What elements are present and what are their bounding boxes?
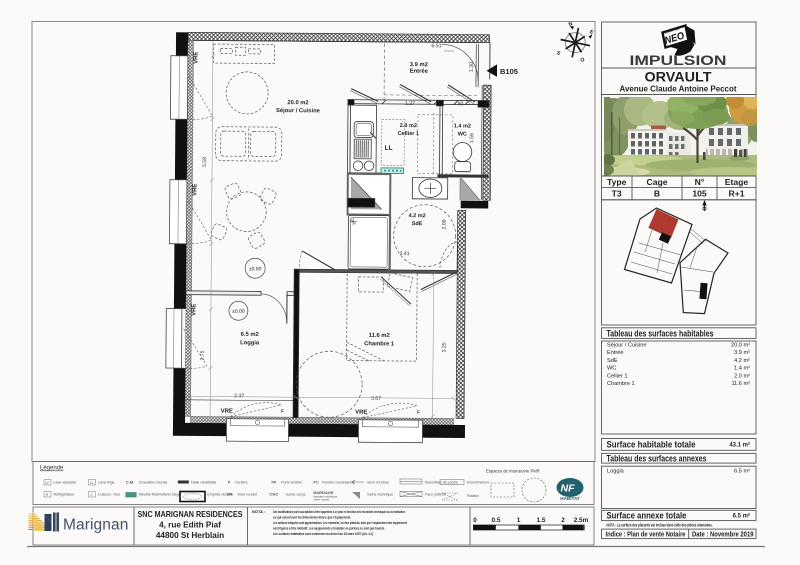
svg-text:VRE: VRE [191, 304, 197, 316]
svg-text:SNC MARIGNAN RESIDENCES: SNC MARIGNAN RESIDENCES [138, 510, 243, 519]
svg-text:N: N [568, 21, 574, 28]
svg-text:1.30: 1.30 [469, 62, 475, 72]
svg-text:SdE: SdE [412, 221, 423, 227]
svg-text:Marignan: Marignan [63, 517, 128, 534]
svg-text:11.6 m²: 11.6 m² [731, 381, 750, 387]
svg-text:Surface annexe totale: Surface annexe totale [607, 511, 687, 522]
svg-text:B105: B105 [500, 67, 518, 76]
svg-text:2.37: 2.37 [234, 393, 244, 399]
svg-text:6.5 m²: 6.5 m² [734, 469, 750, 475]
svg-text:Cellier 1: Cellier 1 [398, 131, 419, 137]
svg-text:PF: PF [271, 480, 277, 485]
svg-text:Entrée: Entrée [410, 69, 429, 75]
svg-text:1.27: 1.27 [405, 101, 415, 107]
svg-text:R+1: R+1 [728, 189, 744, 199]
svg-text:LL: LL [90, 481, 94, 485]
svg-text:VRE: VRE [193, 52, 199, 64]
svg-text:Garde-corps: Garde-corps [285, 493, 305, 497]
svg-text:2.0 m2: 2.0 m2 [400, 123, 417, 129]
svg-text:1: 1 [517, 517, 521, 524]
svg-text:F: F [281, 409, 284, 414]
svg-text:VRE: VRE [192, 184, 198, 196]
svg-text:Encombrement: Encombrement [467, 481, 489, 485]
svg-text:1.56: 1.56 [469, 133, 475, 143]
svg-text:44800 St Herblain: 44800 St Herblain [156, 531, 224, 540]
svg-text:3.57: 3.57 [371, 396, 381, 402]
svg-text:Loggia: Loggia [607, 469, 625, 475]
svg-text:Volet roulant: Volet roulant [237, 493, 257, 497]
svg-text:HABITAT: HABITAT [560, 496, 580, 501]
svg-text:Entrée: Entrée [607, 350, 623, 356]
svg-text:0.5: 0.5 [492, 517, 501, 524]
svg-text:Lave-vaisselle: Lave-vaisselle [54, 481, 77, 485]
svg-text:Les surfaces indiquées sont ap: Les surfaces indiquées sont approximativ… [273, 520, 407, 525]
svg-text:±0.00: ±0.00 [232, 309, 245, 315]
svg-text:2.09: 2.09 [442, 219, 448, 229]
svg-text:Type: Type [607, 177, 627, 187]
svg-text:S: S [555, 50, 561, 57]
svg-text:VRE: VRE [355, 410, 367, 416]
svg-text:2: 2 [561, 517, 565, 524]
svg-text:NF: NF [561, 483, 576, 495]
svg-text:Tableau des surfaces annexes: Tableau des surfaces annexes [607, 453, 707, 464]
svg-text:Légende: Légende [40, 466, 64, 472]
svg-text:Des modifications sont suscept: Des modifications sont susceptibles d'êt… [273, 509, 405, 514]
svg-text:2.0 m²: 2.0 m² [734, 373, 750, 379]
svg-text:Tableau des surfaces habitable: Tableau des surfaces habitables [607, 329, 714, 340]
svg-text:20.0 m2: 20.0 m2 [287, 100, 308, 106]
svg-text:20.0 m²: 20.0 m² [731, 343, 750, 349]
svg-text:Date : Novembre 2019: Date : Novembre 2019 [692, 529, 754, 538]
svg-text:Retombée de poutre: Retombée de poutre [425, 481, 458, 485]
svg-text:6.5 m2: 6.5 m2 [241, 332, 259, 338]
svg-text:2.5m: 2.5m [574, 517, 589, 524]
svg-text:105: 105 [692, 189, 707, 199]
svg-text:3.25: 3.25 [442, 342, 448, 352]
svg-text:43.1 m²: 43.1 m² [729, 442, 750, 449]
svg-text:CGC: CGC [269, 492, 278, 497]
svg-text:Les surfaces habitables sont c: Les surfaces habitables sont conformes a… [273, 531, 373, 536]
svg-text:C: C [91, 493, 94, 497]
svg-text:Indice : Plan de vente Notaire: Indice : Plan de vente Notaire [606, 529, 686, 538]
svg-text:Rotation: Rotation [467, 494, 479, 498]
svg-text:±0.00: ±0.00 [249, 266, 262, 272]
svg-text:2.41: 2.41 [400, 251, 410, 257]
svg-text:6.5 m²: 6.5 m² [733, 513, 750, 520]
svg-text:NOTA : La surface des placar: NOTA : La surface des placards est inclu… [607, 523, 713, 528]
svg-text:VR: VR [227, 492, 233, 497]
svg-text:R: R [46, 493, 49, 497]
svg-text:5.59: 5.59 [202, 157, 208, 167]
svg-text:SdE: SdE [607, 358, 618, 364]
svg-text:LV: LV [45, 481, 50, 485]
svg-text:Surface habitable totale: Surface habitable totale [607, 440, 696, 451]
svg-text:6.51: 6.51 [431, 43, 441, 49]
svg-text:N°: N° [695, 177, 705, 187]
svg-text:0: 0 [473, 517, 477, 524]
svg-text:Porte-fenêtre: Porte-fenêtre [281, 481, 302, 485]
svg-text:Cuisson - four: Cuisson - four [98, 493, 121, 497]
svg-text:90: 90 [458, 101, 464, 107]
svg-text:11.6 m2: 11.6 m2 [369, 333, 390, 339]
svg-text:Fenêtre: Fenêtre [235, 481, 247, 485]
svg-text:1.5: 1.5 [537, 517, 546, 524]
svg-text:Cage: Cage [646, 177, 667, 187]
svg-text:F: F [228, 480, 231, 485]
svg-text:ORVAULT: ORVAULT [645, 70, 713, 85]
svg-text:2.75: 2.75 [200, 350, 206, 360]
svg-text:claire voie(s): claire voie(s) [313, 497, 329, 501]
svg-text:B: B [654, 189, 660, 199]
svg-text:Chambre 1: Chambre 1 [364, 341, 395, 347]
svg-text:O: O [580, 57, 586, 64]
svg-text:Gaine technique: Gaine technique [367, 493, 393, 497]
svg-text:1.4 m2: 1.4 m2 [454, 123, 471, 129]
svg-text:90x213: 90x213 [444, 49, 454, 53]
svg-text:E: E [588, 29, 594, 36]
svg-text:1.4 m²: 1.4 m² [734, 366, 750, 372]
svg-text:4, rue Edith Piaf: 4, rue Edith Piaf [159, 521, 221, 530]
svg-text:VRE: VRE [221, 409, 233, 415]
svg-text:T3: T3 [612, 189, 622, 199]
svg-text:F: F [417, 410, 420, 415]
svg-text:Chaudière murale: Chaudière murale [139, 481, 168, 485]
svg-text:3.9 m²: 3.9 m² [734, 350, 750, 356]
svg-text:ou qui concernent les dimensio: ou qui concernent les dimensions libres,… [273, 515, 351, 520]
svg-text:Cellier 1: Cellier 1 [607, 373, 628, 379]
svg-text:C.M.: C.M. [126, 480, 134, 485]
svg-text:Etage: Etage [725, 177, 749, 187]
svg-text:Avenue Claude Antoine Peccot: Avenue Claude Antoine Peccot [620, 84, 737, 94]
svg-text:LL: LL [385, 145, 393, 152]
svg-text:Fenêtre coulissante: Fenêtre coulissante [322, 481, 353, 485]
svg-text:Réfrigérateur: Réfrigérateur [54, 493, 76, 497]
svg-text:sont figurés à titre indicatif: sont figurés à titre indicatif. Les équi… [273, 526, 385, 531]
svg-text:FC: FC [313, 480, 318, 485]
svg-text:Espaces de manœuvre PMR: Espaces de manœuvre PMR [486, 469, 540, 474]
svg-text:Séjour / Cuisine: Séjour / Cuisine [607, 343, 647, 349]
svg-text:Table rabattable: Table rabattable [191, 481, 217, 485]
svg-text:Sens d'entrée: Sens d'entrée [367, 481, 389, 485]
svg-text:4.2 m2: 4.2 m2 [409, 213, 426, 219]
svg-text:3.9 m2: 3.9 m2 [410, 62, 428, 68]
svg-text:4.2 m²: 4.2 m² [734, 358, 750, 364]
svg-text:Séjour / Cuisine: Séjour / Cuisine [276, 108, 321, 114]
svg-text:Chambre 1: Chambre 1 [607, 381, 635, 387]
svg-text:WC: WC [458, 131, 467, 137]
svg-text:NOTA :: NOTA : [252, 509, 265, 514]
svg-text:Loggia: Loggia [240, 340, 260, 346]
svg-text:WC: WC [607, 366, 616, 372]
svg-text:Lave-linge: Lave-linge [98, 481, 115, 485]
